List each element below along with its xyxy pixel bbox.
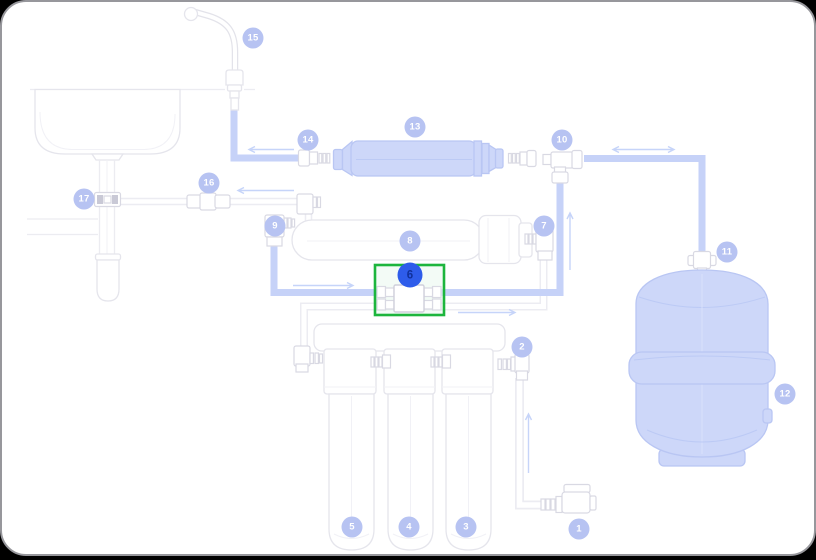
part-badge-14[interactable]: 14: [298, 130, 319, 151]
part-badge-4[interactable]: 4: [399, 517, 420, 538]
part-badge-15[interactable]: 15: [243, 28, 264, 49]
part-badge-8[interactable]: 8: [400, 231, 421, 252]
parts-diagram: 1234567891011121314151617: [2, 2, 814, 554]
part-badge-3[interactable]: 3: [456, 517, 477, 538]
part-badge-12[interactable]: 12: [775, 384, 796, 405]
part-badge-17[interactable]: 17: [74, 189, 95, 210]
part-badge-2[interactable]: 2: [512, 337, 533, 358]
part-badge-5[interactable]: 5: [342, 517, 363, 538]
screenshot-stage: 1234567891011121314151617: [0, 0, 816, 560]
part-badge-7[interactable]: 7: [534, 216, 555, 237]
part-badge-16[interactable]: 16: [199, 173, 220, 194]
part-badges: 1234567891011121314151617: [2, 2, 814, 554]
part-badge-1[interactable]: 1: [569, 519, 590, 540]
app-window: 1234567891011121314151617: [0, 0, 816, 556]
part-badge-9[interactable]: 9: [265, 216, 286, 237]
part-badge-10[interactable]: 10: [552, 130, 573, 151]
part-badge-13[interactable]: 13: [405, 117, 426, 138]
part-badge-11[interactable]: 11: [717, 242, 738, 263]
part-badge-6[interactable]: 6: [398, 263, 423, 288]
